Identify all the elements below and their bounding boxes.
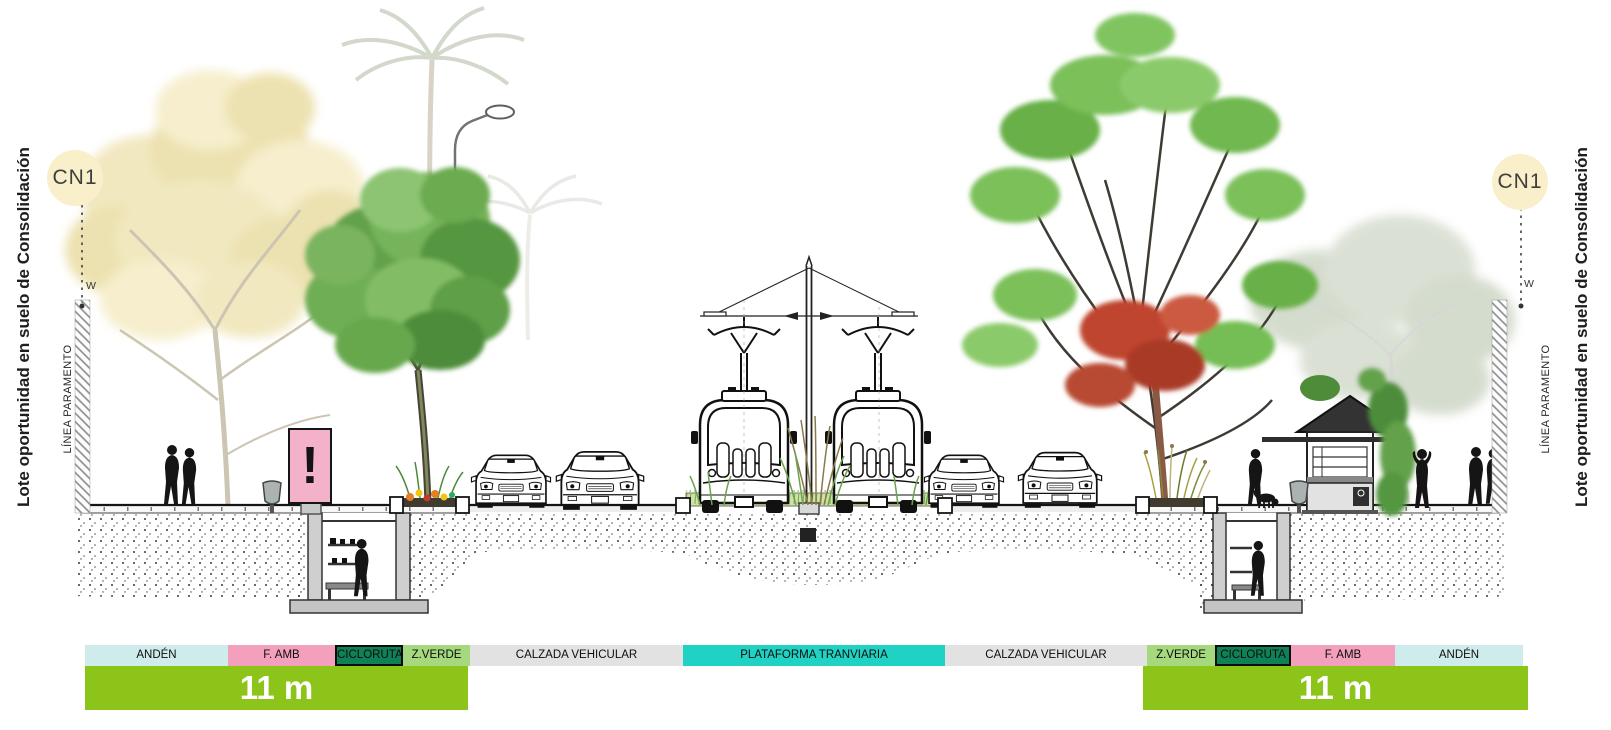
zone-famb-right: F. AMB xyxy=(1291,645,1395,666)
lot-opportunity-label-right: Lote oportunidad en suelo de Consolidaci… xyxy=(1572,162,1592,507)
zone-calzada-left: CALZADA VEHICULAR xyxy=(470,645,683,666)
zone-plataforma-tranviaria: PLATAFORMA TRANVIARIA xyxy=(683,645,945,666)
zone-zverde-left: Z.VERDE xyxy=(403,645,470,666)
section-illustration xyxy=(0,0,1611,730)
section-badge-right: CN1 xyxy=(1492,154,1548,210)
ground-section xyxy=(75,505,1507,608)
pedestrian-couple-left xyxy=(164,445,196,504)
billboard-pedestal xyxy=(301,503,321,514)
kiosk xyxy=(1262,368,1416,516)
w-mark-left: W xyxy=(86,280,96,292)
person-with-dog xyxy=(1248,449,1279,508)
zone-calzada-right: CALZADA VEHICULAR xyxy=(945,645,1147,666)
property-wall-right xyxy=(1492,208,1524,513)
photographer xyxy=(1413,449,1432,508)
zone-anden-right: ANDÉN xyxy=(1395,645,1523,666)
zone-cicloruta-right: CICLORUTA xyxy=(1215,645,1291,666)
street-section-diagram: CN1 CN1 Lote oportunidad en suelo de Con… xyxy=(0,0,1611,730)
underground-vault-left xyxy=(290,513,428,613)
zone-bar: ANDÉN F. AMB CICLORUTA Z.VERDE CALZADA V… xyxy=(85,645,1523,666)
w-mark-right: W xyxy=(1524,278,1534,290)
zone-famb-left: F. AMB xyxy=(228,645,335,666)
zone-zverde-right: Z.VERDE xyxy=(1147,645,1215,666)
dimension-bar-right: 11 m xyxy=(1143,666,1528,710)
dimension-bar-left: 11 m xyxy=(85,666,468,710)
car-right-2 xyxy=(1018,453,1101,508)
paramento-line-label-right: LÍNEA PARAMENTO xyxy=(1540,304,1552,494)
car-right-1 xyxy=(924,455,1003,507)
green-tree-right xyxy=(962,13,1318,505)
zone-cicloruta-left: CICLORUTA xyxy=(335,645,403,666)
car-left-2 xyxy=(556,452,643,510)
billboard-exclamation-sign: ! xyxy=(288,428,332,504)
lot-opportunity-label-left: Lote oportunidad en suelo de Consolidaci… xyxy=(14,162,34,507)
paramento-line-label-left: LÍNEA PARAMENTO xyxy=(62,304,74,494)
zone-anden-left: ANDÉN xyxy=(85,645,228,666)
section-badge-left: CN1 xyxy=(47,150,103,206)
underground-vault-right xyxy=(1204,513,1302,613)
car-left-1 xyxy=(471,455,550,507)
